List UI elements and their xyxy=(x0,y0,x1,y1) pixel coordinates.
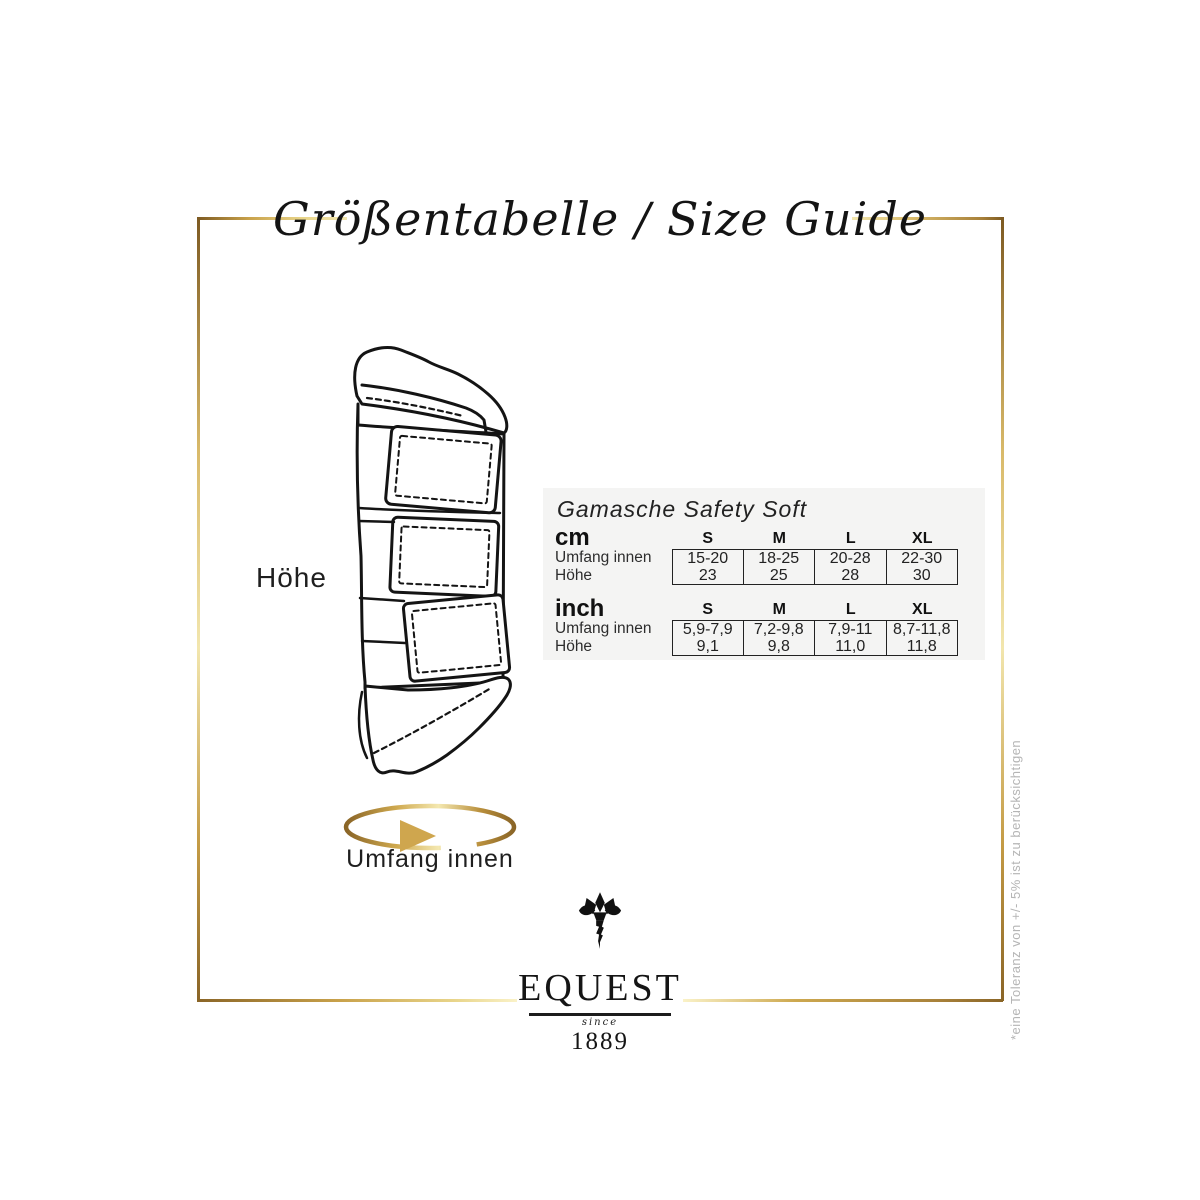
frame-right-edge xyxy=(1001,217,1004,1001)
height-label: Höhe xyxy=(256,562,327,594)
circumference-label: Umfang innen xyxy=(320,845,540,874)
strap-bottom xyxy=(403,594,510,681)
size-header: M xyxy=(744,529,816,549)
boot-drawing xyxy=(355,348,511,774)
table-cell: 28 xyxy=(815,567,887,585)
table-cell: 11,8 xyxy=(887,638,959,656)
size-header: M xyxy=(744,600,816,620)
brand-name: EQUEST xyxy=(500,966,700,1010)
table-cell: 20-28 xyxy=(815,549,887,567)
brand-logo: EQUEST since 1889 xyxy=(500,891,700,1056)
boot-flap xyxy=(365,677,510,773)
row-label: Höhe xyxy=(555,638,672,656)
size-table-cm: cm S M L XL Umfang innen 15-20 18-25 20-… xyxy=(555,527,973,585)
table-cell: 5,9-7,9 xyxy=(672,620,744,638)
row-label: Höhe xyxy=(555,567,672,585)
table-cell: 22-30 xyxy=(887,549,959,567)
size-header: XL xyxy=(887,600,959,620)
size-header: L xyxy=(815,600,887,620)
frame-bottom-right-segment xyxy=(683,999,1003,1002)
boot-diagram xyxy=(240,330,540,890)
thistle-icon xyxy=(577,891,623,953)
strap-middle xyxy=(390,517,499,597)
size-table-panel: Gamasche Safety Soft cm S M L XL Umfang … xyxy=(543,488,985,660)
table-cell: 30 xyxy=(887,567,959,585)
tolerance-footnote: *eine Toleranz von +/- 5% ist zu berücks… xyxy=(1008,728,1023,1040)
strap-top xyxy=(385,426,501,513)
page-title: Größentabelle / Size Guide xyxy=(0,192,1200,246)
size-header: S xyxy=(672,529,744,549)
frame-left-edge xyxy=(197,217,200,1001)
table-cell: 15-20 xyxy=(672,549,744,567)
size-header: XL xyxy=(887,529,959,549)
logo-since: since xyxy=(500,1017,700,1028)
table-cell: 9,8 xyxy=(744,638,816,656)
product-title: Gamasche Safety Soft xyxy=(557,496,973,523)
row-label: Umfang innen xyxy=(555,620,672,638)
logo-year: 1889 xyxy=(500,1028,700,1056)
size-header: L xyxy=(815,529,887,549)
size-table-inch: inch S M L XL Umfang innen 5,9-7,9 7,2-9… xyxy=(555,598,973,656)
table-cell: 8,7-11,8 xyxy=(887,620,959,638)
size-header: S xyxy=(672,600,744,620)
table-cell: 18-25 xyxy=(744,549,816,567)
table-cell: 23 xyxy=(672,567,744,585)
unit-label-inch: inch xyxy=(555,598,672,620)
table-cell: 25 xyxy=(744,567,816,585)
unit-label-cm: cm xyxy=(555,527,672,549)
frame-bottom-left-segment xyxy=(197,999,517,1002)
table-cell: 11,0 xyxy=(815,638,887,656)
row-label: Umfang innen xyxy=(555,549,672,567)
table-cell: 7,2-9,8 xyxy=(744,620,816,638)
logo-divider xyxy=(529,1013,671,1016)
table-cell: 9,1 xyxy=(672,638,744,656)
table-cell: 7,9-11 xyxy=(815,620,887,638)
circumference-arrow-ellipse xyxy=(346,806,514,848)
